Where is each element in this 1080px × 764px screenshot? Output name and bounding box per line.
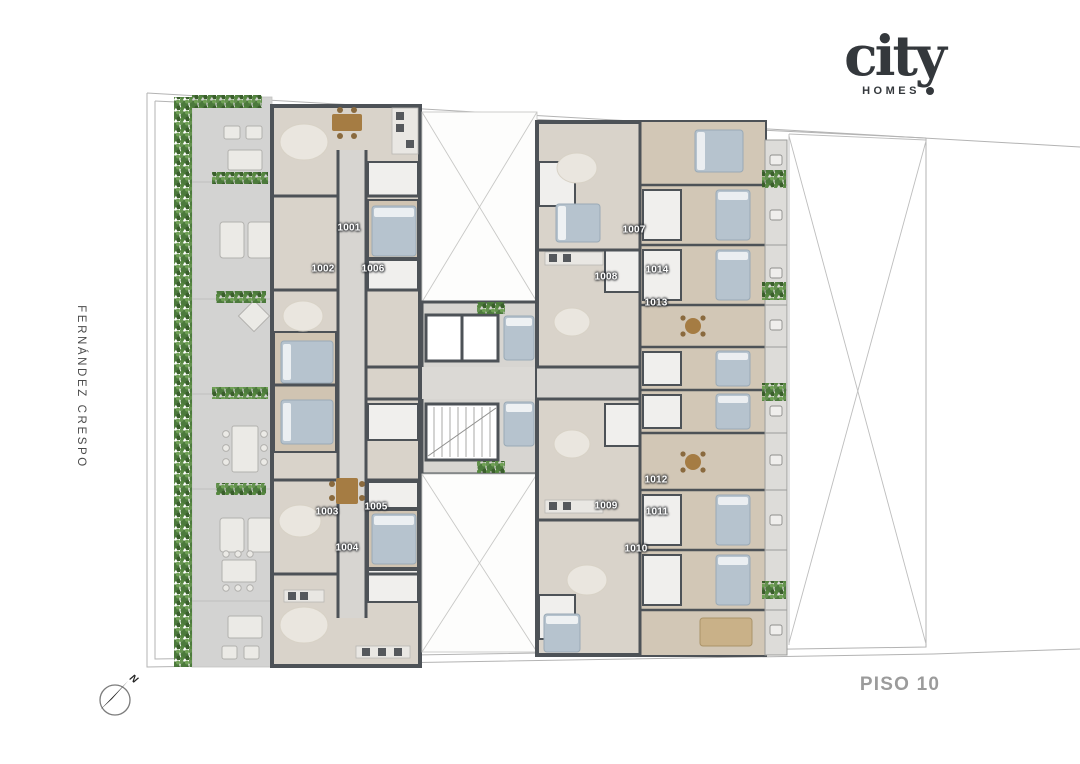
central-core <box>422 112 537 652</box>
street-name-label: FERNÁNDEZ CRESPO <box>75 299 87 475</box>
courtyard-top <box>422 112 537 302</box>
unit-label-1012: 1012 <box>644 475 667 486</box>
unit-label-1004: 1004 <box>335 543 358 554</box>
unit-label-1013: 1013 <box>644 298 667 309</box>
elevators <box>426 315 498 361</box>
floorplan-drawing: N <box>0 0 1080 764</box>
unit-label-1008: 1008 <box>594 272 617 283</box>
neighbor-lot <box>789 134 926 645</box>
logo-dot-icon <box>926 87 934 95</box>
right-wing <box>537 122 787 655</box>
unit-label-1007: 1007 <box>622 225 645 236</box>
unit-label-1005: 1005 <box>364 502 387 513</box>
unit-label-1014: 1014 <box>645 265 668 276</box>
courtyard-bottom <box>422 474 537 652</box>
unit-label-1011: 1011 <box>646 507 669 518</box>
compass-icon: N <box>100 673 140 715</box>
unit-label-1006: 1006 <box>361 264 384 275</box>
compass-north-label: N <box>127 673 140 687</box>
unit-label-1002: 1002 <box>311 264 334 275</box>
brand-wordmark: city <box>820 30 968 82</box>
floor-title: PISO 10 <box>858 674 942 696</box>
left-wing <box>272 106 420 666</box>
unit-label-1009: 1009 <box>594 501 617 512</box>
brand-subtitle: HOMES <box>820 85 968 97</box>
unit-label-1001: 1001 <box>337 223 360 234</box>
floorplan-sheet: N 1001 1002 1003 1004 1005 1006 1007 100… <box>0 0 1080 764</box>
unit-label-1003: 1003 <box>315 507 338 518</box>
brand-logo: city HOMES <box>820 30 968 97</box>
stairs <box>426 404 498 460</box>
unit-label-1010: 1010 <box>624 544 647 555</box>
brand-subtitle-text: HOMES <box>862 85 920 97</box>
